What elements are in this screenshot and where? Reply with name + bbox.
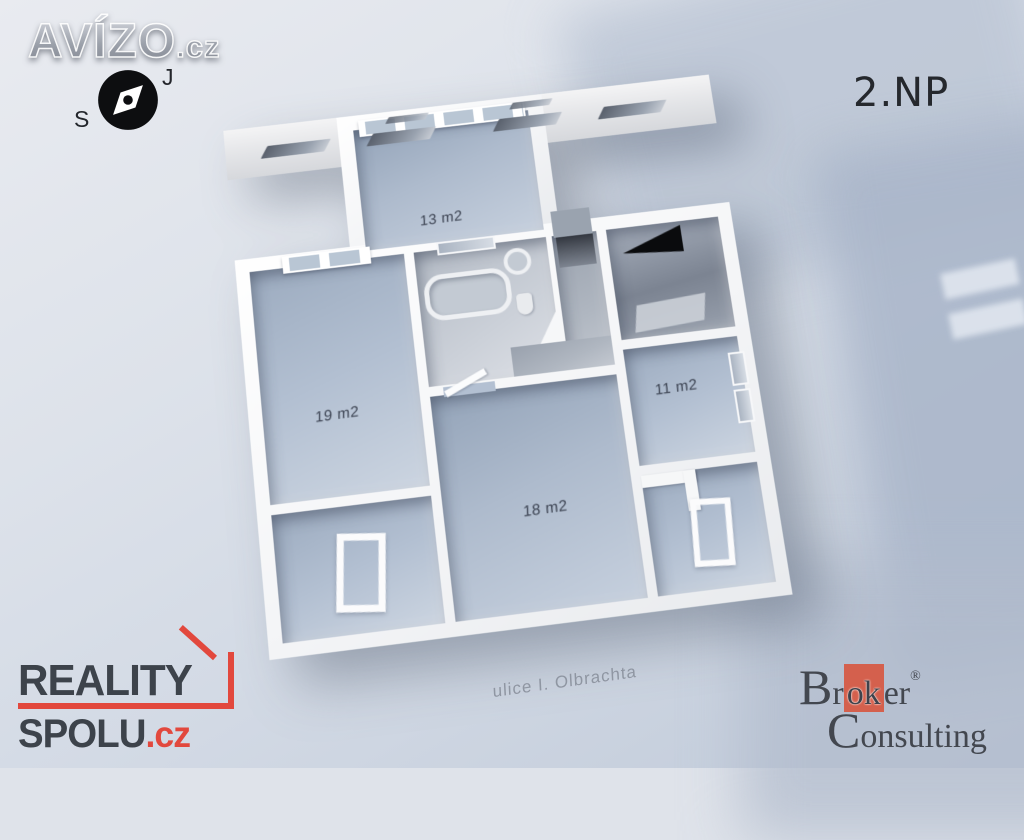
bathtub-icon [422,266,514,322]
sink-icon [502,247,533,277]
compass-rose-icon [96,68,160,132]
registered-mark: ® [910,669,921,684]
room-18: 18 m2 [430,374,648,622]
realityspolu-cz: .cz [145,714,190,755]
room-19: 19 m2 [249,254,429,505]
floorplan-3d: 13 m2 19 m2 11 m2 [223,75,801,716]
floor-level-label: 2.NP [853,70,949,116]
small-room-left [271,496,445,644]
compass-label-s: S [74,106,89,133]
toilet-icon [516,292,534,315]
facade-window-slit [261,139,331,159]
shadow-window-light [940,258,1020,299]
realityspolu-line1: REALITY [18,656,192,706]
avizo-logo-suffix: .cz [176,29,220,64]
room-area-label: 18 m2 [523,497,568,521]
room-area-label: 11 m2 [654,376,698,399]
staircase-room [606,217,736,341]
small-room-right [641,462,776,597]
realityspolu-logo: REALITY SPOLU.cz [16,632,256,762]
compass-label-j: J [162,64,174,91]
scene-background: 13 m2 19 m2 11 m2 [0,0,1024,768]
broker-line2: Consulting [827,705,987,755]
broker-consulting-logo: Broker® Consulting [795,662,1024,755]
avizo-logo: AVÍZO.cz [28,14,220,69]
realityspolu-line2-text: SPOLU [18,712,145,756]
roof-accent-vertical [228,652,234,705]
floor-hatch-icon [336,533,386,613]
stair-void-triangle [620,225,684,258]
cast-shadow-right [809,111,1024,688]
compass-icon: J S [88,64,198,144]
room-area-label: 19 m2 [315,403,360,426]
open-door-dark [556,233,597,267]
realityspolu-line2: SPOLU.cz [18,712,190,757]
facade-window-slit [598,100,667,120]
roof-accent-diagonal [179,625,217,660]
floor-hatch-icon [690,497,736,567]
stair-landing [636,293,706,333]
room-area-label: 13 m2 [420,208,463,230]
avizo-logo-text: AVÍZO [28,15,176,68]
shadow-window-light [948,298,1024,339]
